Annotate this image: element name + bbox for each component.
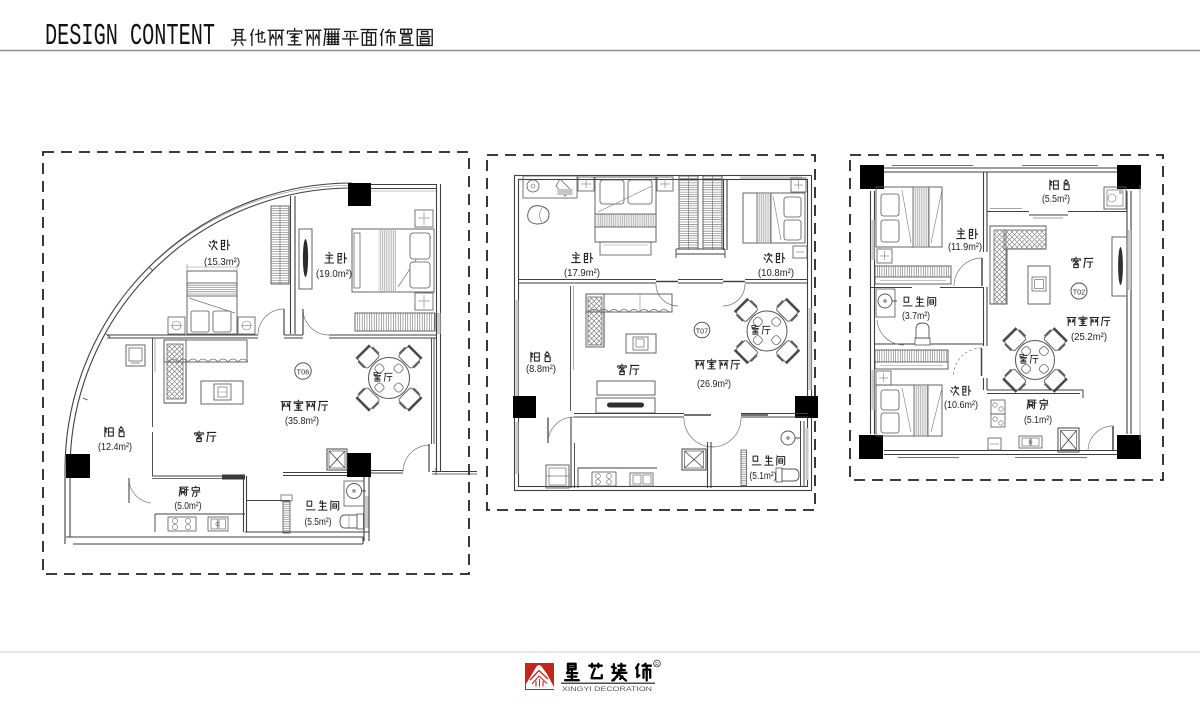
svg-text:(35.8m²): (35.8m²) <box>285 415 319 427</box>
svg-text:(10.6m²): (10.6m²) <box>944 400 978 411</box>
svg-text:(11.9m²): (11.9m²) <box>948 242 982 253</box>
svg-text:(10.8m²): (10.8m²) <box>758 267 794 279</box>
svg-text:T06: T06 <box>297 368 310 377</box>
svg-text:(5.1m²): (5.1m²) <box>750 471 777 482</box>
svg-text:(5.0m²): (5.0m²) <box>175 500 202 512</box>
svg-text:(26.9m²): (26.9m²) <box>697 378 731 390</box>
svg-text:(19.0m²): (19.0m²) <box>316 268 352 280</box>
svg-text:(17.9m²): (17.9m²) <box>564 267 600 279</box>
svg-text:(5.5m²): (5.5m²) <box>1042 194 1070 205</box>
svg-text:(25.2m²): (25.2m²) <box>1071 332 1107 343</box>
svg-text:(5.1m²): (5.1m²) <box>1024 415 1052 426</box>
svg-text:T07: T07 <box>696 327 708 336</box>
svg-text:(15.3m²): (15.3m²) <box>204 256 240 268</box>
svg-text:(3.7m²): (3.7m²) <box>902 311 930 322</box>
svg-text:(8.8m²): (8.8m²) <box>526 363 556 375</box>
svg-text:XINGYI DECORATION: XINGYI DECORATION <box>562 686 652 693</box>
svg-text:T02: T02 <box>1073 288 1085 297</box>
svg-text:(12.4m²): (12.4m²) <box>98 441 132 453</box>
svg-text:DESIGN CONTENT: DESIGN CONTENT <box>45 20 215 54</box>
svg-text:R: R <box>655 662 659 668</box>
svg-text:(5.5m²): (5.5m²) <box>305 516 332 528</box>
